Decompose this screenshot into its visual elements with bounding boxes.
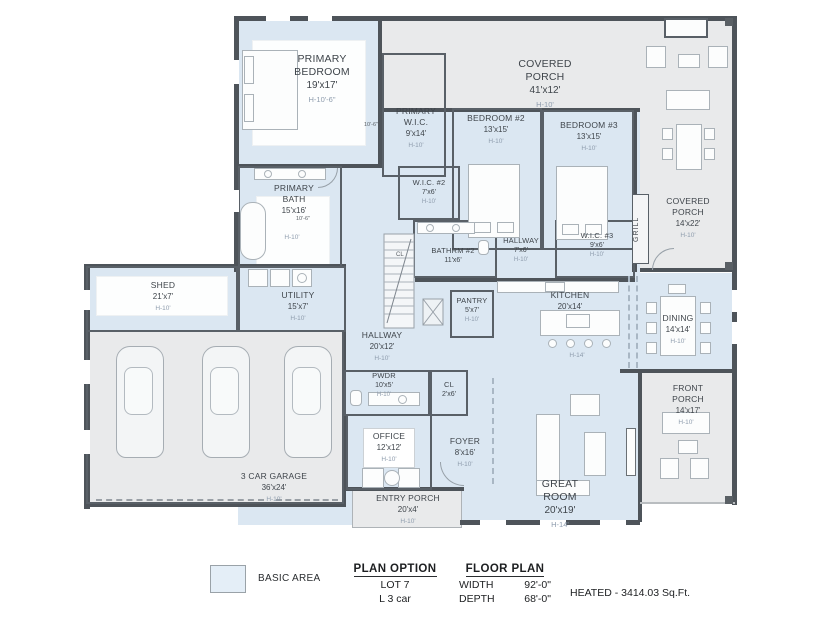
room-height: H-10': [387, 139, 445, 151]
room-dims: 9'x14': [387, 128, 445, 139]
room-dims: 5'x7': [450, 306, 494, 316]
floor-plan-width-row: WIDTH 92'-0": [455, 579, 555, 591]
window: [732, 322, 737, 344]
pillow-icon: [497, 222, 514, 233]
room-name: BEDROOM #3: [544, 120, 634, 131]
office-table-icon: [384, 470, 400, 486]
room-height: H-10': [224, 493, 324, 505]
room-height: H-10': [369, 453, 409, 465]
room-height: H-10': [451, 135, 541, 147]
room-name: PRIMARY W.I.C.: [387, 106, 445, 128]
sink-icon: [298, 170, 306, 178]
room-height: H-10': [263, 312, 333, 324]
room-dims: 10'x5': [359, 381, 409, 391]
depth-value: 68'-0": [524, 593, 551, 605]
room-name: PRIMARY BATH: [263, 183, 325, 205]
room-label-garage: 3 CAR GARAGE 36'x24' H-10': [224, 471, 324, 505]
room-dims: 36'x24': [224, 482, 324, 493]
room-height: H-10'-6": [270, 92, 374, 106]
room-label-wic2: W.I.C. #2 7'x6' H-10': [402, 178, 456, 208]
closet-note: CL: [396, 252, 404, 258]
basic-area-label: BASIC AREA: [258, 573, 320, 584]
room-dims: 14'x17': [660, 405, 716, 416]
room-label-wic3: W.I.C. #3 9'x6' H-10': [569, 231, 625, 261]
grill-label: GRILL: [632, 194, 649, 264]
car-icon: [202, 346, 250, 458]
washer-icon: [248, 269, 268, 287]
room-height: H-10': [359, 390, 409, 401]
room-dims: 12'x12': [369, 442, 409, 453]
chair-icon: [660, 458, 679, 479]
room-name: COVERED PORCH: [507, 58, 583, 84]
room-label-foyer: FOYER 8'x16' H-10': [440, 436, 490, 470]
room-height: H-10': [440, 458, 490, 470]
kitchen-dining-opening: [628, 276, 630, 368]
stair-riser-note: 10'-6": [364, 122, 378, 128]
stool-icon: [548, 339, 557, 348]
chair-icon: [704, 128, 715, 140]
room-name: PWDR: [359, 371, 409, 381]
floor-plan-block: FLOOR PLAN WIDTH 92'-0" DEPTH 68'-0": [455, 559, 555, 605]
foyer-greatroom-opening: [492, 378, 494, 484]
room-name: OFFICE: [369, 431, 409, 442]
room-dims: 11'x6': [418, 256, 488, 266]
plan-option-block: PLAN OPTION LOT 7 L 3 car: [345, 559, 445, 605]
room-dims: 14'x14': [648, 324, 708, 335]
room-name: FOYER: [440, 436, 490, 447]
room-name: CL: [434, 380, 464, 390]
floor-plan-depth-row: DEPTH 68'-0": [455, 593, 555, 605]
chair-icon: [690, 458, 709, 479]
coffee-table: [584, 432, 606, 476]
room-dims: 20'x12': [347, 341, 417, 352]
pillow-icon: [474, 222, 491, 233]
room-label-pwdr: PWDR 10'x5' H-10': [359, 371, 409, 401]
room-name: GREAT ROOM: [532, 478, 588, 504]
sofa-icon: [666, 90, 710, 110]
room-name: HALLWAY: [347, 330, 417, 341]
coffee-table: [678, 54, 700, 68]
room-label-front-porch: FRONT PORCH 14'x17': [660, 383, 716, 416]
room-dims: 41'x12': [507, 84, 583, 97]
room-height: H-10': [284, 234, 299, 241]
basic-area-swatch: [210, 565, 246, 593]
room-name: DINING: [648, 313, 708, 324]
window: [234, 190, 239, 212]
room-name: PANTRY: [450, 296, 494, 306]
stair-riser-note: 10'-6": [296, 216, 310, 222]
wall: [732, 16, 737, 505]
room-dims: 9'x6': [569, 241, 625, 251]
washer-icon: [270, 269, 290, 287]
room-height: H-10': [544, 142, 634, 154]
car-icon: [116, 346, 164, 458]
room-label-closet: CL 2'x6': [434, 380, 464, 399]
room-name: SHED: [128, 280, 198, 291]
room-label-entry-porch: ENTRY PORCH 20'x4' H-10': [358, 493, 458, 527]
side-table: [678, 440, 698, 454]
room-height: H-10': [507, 97, 583, 111]
room-label-bedroom3: BEDROOM #3 13'x15' H-10': [544, 120, 634, 154]
room-name: COVERED PORCH: [657, 196, 719, 218]
dryer-door-icon: [297, 273, 307, 283]
chair-icon: [662, 148, 673, 160]
window: [732, 290, 737, 312]
stat-heated: HEATED - 3414.03 Sq.Ft.: [570, 586, 711, 600]
car-icon: [284, 346, 332, 458]
room-label-shed: SHED 21'x7' H-10': [128, 280, 198, 314]
window: [308, 16, 332, 21]
room-label-pantry: PANTRY 5'x7' H-10': [450, 296, 494, 326]
room-dims: 15'x7': [263, 301, 333, 312]
room-height: H-10': [358, 515, 458, 527]
pillow-icon: [244, 94, 254, 122]
room-name: PRIMARY BEDROOM: [270, 53, 374, 79]
room-label-kitchen: KITCHEN 20'x14': [535, 290, 605, 312]
sofa-icon: [536, 414, 560, 484]
chair-icon: [708, 46, 728, 68]
room-name: W.I.C. #3: [569, 231, 625, 241]
room-label-covered-porch-right: COVERED PORCH 14'x22' H-10': [657, 196, 719, 241]
stool-icon: [602, 339, 611, 348]
room-height: H-14': [569, 352, 584, 359]
room-height: H-10': [678, 419, 693, 426]
fireplace-icon: [664, 18, 708, 38]
room-height: H-10': [450, 315, 494, 326]
room-height: H-10': [402, 197, 456, 208]
floor-plan-title: FLOOR PLAN: [466, 563, 545, 577]
room-height: H-10': [347, 352, 417, 364]
room-dims: 2'x6': [434, 390, 464, 400]
room-label-hallway-upper: HALLWAY 7'x6' H-10': [493, 236, 549, 266]
room-name: 3 CAR GARAGE: [224, 471, 324, 482]
porch-post: [725, 496, 733, 504]
room-label-hallway-main: HALLWAY 20'x12' H-10': [347, 330, 417, 364]
width-label: WIDTH: [459, 579, 493, 591]
room-label-covered-porch-top: COVERED PORCH 41'x12' H-10': [507, 58, 583, 111]
sink-icon: [426, 224, 434, 232]
chair-icon: [668, 284, 686, 294]
porch-edge: [640, 502, 735, 504]
room-name: W.I.C. #2: [402, 178, 456, 188]
room-name: HALLWAY: [493, 236, 549, 246]
room-dims: 21'x7': [128, 291, 198, 302]
room-label-great-room: GREAT ROOM 20'x19' H-14': [532, 478, 588, 531]
office-chair-icon: [398, 468, 420, 488]
sink-icon: [264, 170, 272, 178]
room-dims: 20'x14': [535, 301, 605, 312]
room-label-bedroom2: BEDROOM #2 13'x15' H-10': [451, 113, 541, 147]
room-label-primary-bedroom: PRIMARY BEDROOM 19'x17' H-10'-6": [270, 53, 374, 106]
window: [600, 520, 626, 525]
area-stats-block: HEATED - 3414.03 Sq.Ft. TOTAL HEATED - 4…: [570, 558, 711, 619]
room-height: H-10': [493, 255, 549, 266]
depth-label: DEPTH: [459, 593, 495, 605]
room-dims: 15'x16': [263, 205, 325, 216]
room-name: BEDROOM #2: [451, 113, 541, 124]
window: [84, 290, 90, 310]
room-name: FRONT PORCH: [660, 383, 716, 405]
stool-icon: [566, 339, 575, 348]
sink-icon: [452, 224, 460, 232]
plan-option-car: L 3 car: [345, 593, 445, 605]
window: [84, 360, 90, 384]
island-sink-icon: [566, 314, 590, 328]
room-height: H-10': [648, 335, 708, 347]
room-label-primary-wic: PRIMARY W.I.C. 9'x14' H-10': [387, 106, 445, 151]
room-height: H-14': [532, 517, 588, 531]
room-height: H-10': [569, 250, 625, 261]
room-name: ENTRY PORCH: [358, 493, 458, 504]
room-dims: 13'x15': [544, 131, 634, 142]
porch-post: [725, 18, 733, 26]
floor-plan-canvas: GRILL PRIMARY BEDROOM 19'x17' H-10'-6" P…: [0, 0, 825, 619]
kitchen-dining-opening: [636, 276, 638, 368]
room-name: UTILITY: [263, 290, 333, 301]
room-dims: 20'x19': [532, 504, 588, 517]
window: [234, 60, 239, 84]
wall: [638, 372, 642, 522]
plan-option-lot: LOT 7: [345, 579, 445, 591]
room-label-bathrm2: BATHRM #2 11'x6': [418, 246, 488, 265]
stool-icon: [584, 339, 593, 348]
room-dims: 13'x15': [451, 124, 541, 135]
chair-icon: [704, 148, 715, 160]
room-label-dining: DINING 14'x14' H-10': [648, 313, 708, 347]
window: [480, 520, 506, 525]
room-dims: 20'x4': [358, 504, 458, 515]
room-label-office: OFFICE 12'x12' H-10': [363, 428, 415, 468]
room-height: H-10': [128, 302, 198, 314]
chair-icon: [662, 128, 673, 140]
tv-icon: [626, 428, 636, 476]
room-dims: 8'x16': [440, 447, 490, 458]
room-name: KITCHEN: [535, 290, 605, 301]
room-label-primary-bath: PRIMARY BATH 15'x16': [263, 183, 325, 216]
window: [84, 430, 90, 454]
room-height: H-10': [657, 229, 719, 241]
pillow-icon: [244, 56, 254, 84]
width-value: 92'-0": [524, 579, 551, 591]
room-dims: 14'x22': [657, 218, 719, 229]
chair-icon: [646, 46, 666, 68]
porch-post: [725, 262, 733, 270]
room-label-utility: UTILITY 15'x7' H-10': [263, 290, 333, 324]
room-dims: 19'x17': [270, 79, 374, 92]
room-name: BATHRM #2: [418, 246, 488, 256]
plan-option-title: PLAN OPTION: [354, 563, 437, 577]
armchair-icon: [570, 394, 600, 416]
room-dims: 7'x6': [493, 246, 549, 256]
window: [266, 16, 290, 21]
office-chair-icon: [362, 468, 384, 488]
room-dims: 7'x6': [402, 188, 456, 198]
porch-dining-table: [676, 124, 702, 170]
